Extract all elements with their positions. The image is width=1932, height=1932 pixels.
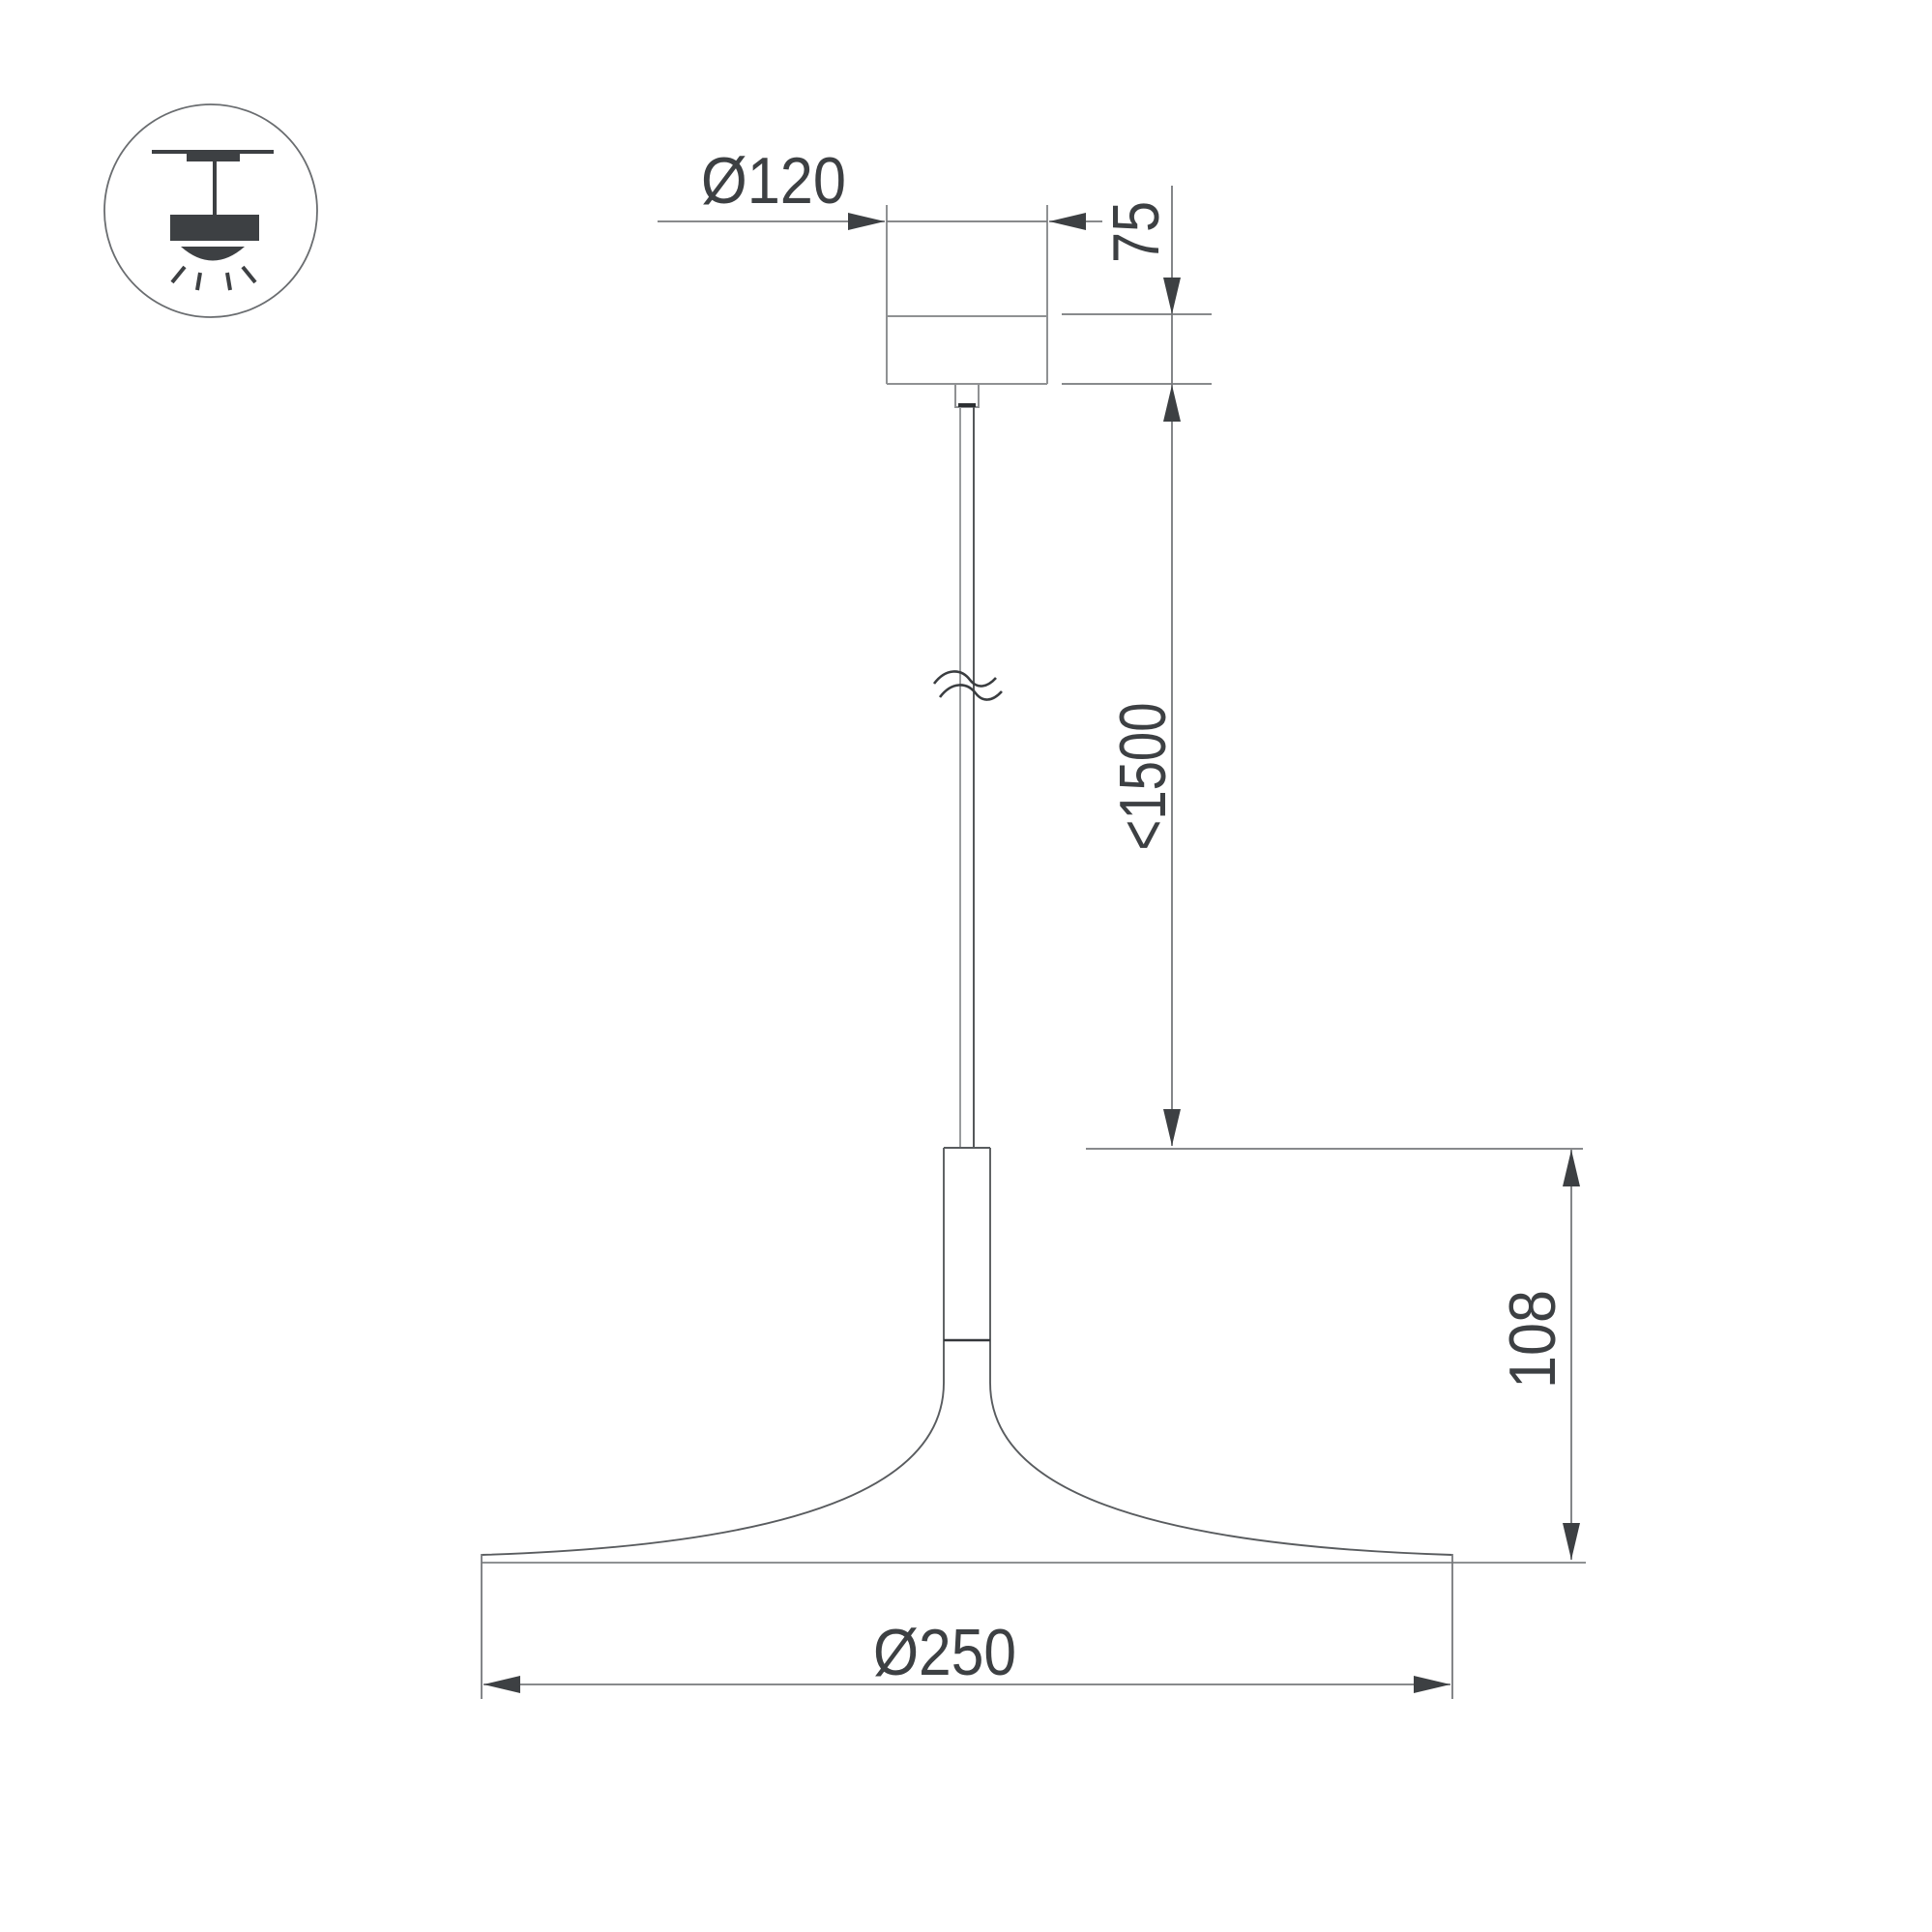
dimension-shade-diameter: Ø250 bbox=[482, 1554, 1452, 1699]
arrow-down-icon bbox=[1563, 1523, 1580, 1560]
icon-light-rays bbox=[172, 267, 255, 290]
arrow-up-icon bbox=[1163, 385, 1181, 422]
cable-break-symbol bbox=[934, 671, 1002, 699]
suspension-cable bbox=[934, 407, 1002, 1148]
fixture-height-label: 108 bbox=[1496, 1290, 1569, 1389]
dimension-canopy-diameter: Ø120 bbox=[658, 144, 1102, 230]
arrow-left-icon bbox=[483, 1676, 520, 1693]
arrow-right-icon bbox=[1414, 1676, 1450, 1693]
pendant-ceiling-mount-icon bbox=[104, 104, 317, 317]
dimension-fixture-height: 108 bbox=[1496, 1150, 1580, 1560]
cable-connector bbox=[955, 384, 979, 407]
shade-left-profile bbox=[482, 1148, 944, 1555]
canopy-height-label: 75 bbox=[1099, 201, 1173, 263]
arrow-up-icon bbox=[1563, 1150, 1580, 1186]
drawing-canvas: Ø120 75 <1500 108 Ø250 bbox=[0, 0, 1932, 1932]
pendant-lamp-dimension-drawing: Ø120 75 <1500 108 Ø250 bbox=[0, 0, 1932, 1932]
shade-right-profile bbox=[990, 1148, 1452, 1555]
dimension-canopy-height-and-cable: 75 <1500 bbox=[1062, 186, 1583, 1149]
icon-mount-plate bbox=[187, 153, 240, 161]
arrow-right-icon bbox=[848, 213, 885, 230]
shade-diameter-label: Ø250 bbox=[873, 1616, 1016, 1689]
icon-lamp-body bbox=[170, 215, 259, 241]
icon-circle-border bbox=[104, 104, 317, 317]
arrow-down-icon bbox=[1163, 278, 1181, 314]
suspension-length-label: <1500 bbox=[1106, 703, 1180, 851]
lamp-shade-outline bbox=[482, 1148, 1586, 1563]
icon-light-dome bbox=[181, 247, 245, 261]
arrow-down-icon bbox=[1163, 1109, 1181, 1146]
arrow-left-icon bbox=[1049, 213, 1086, 230]
canopy-diameter-label: Ø120 bbox=[701, 144, 846, 218]
canopy-outline bbox=[887, 205, 1047, 384]
